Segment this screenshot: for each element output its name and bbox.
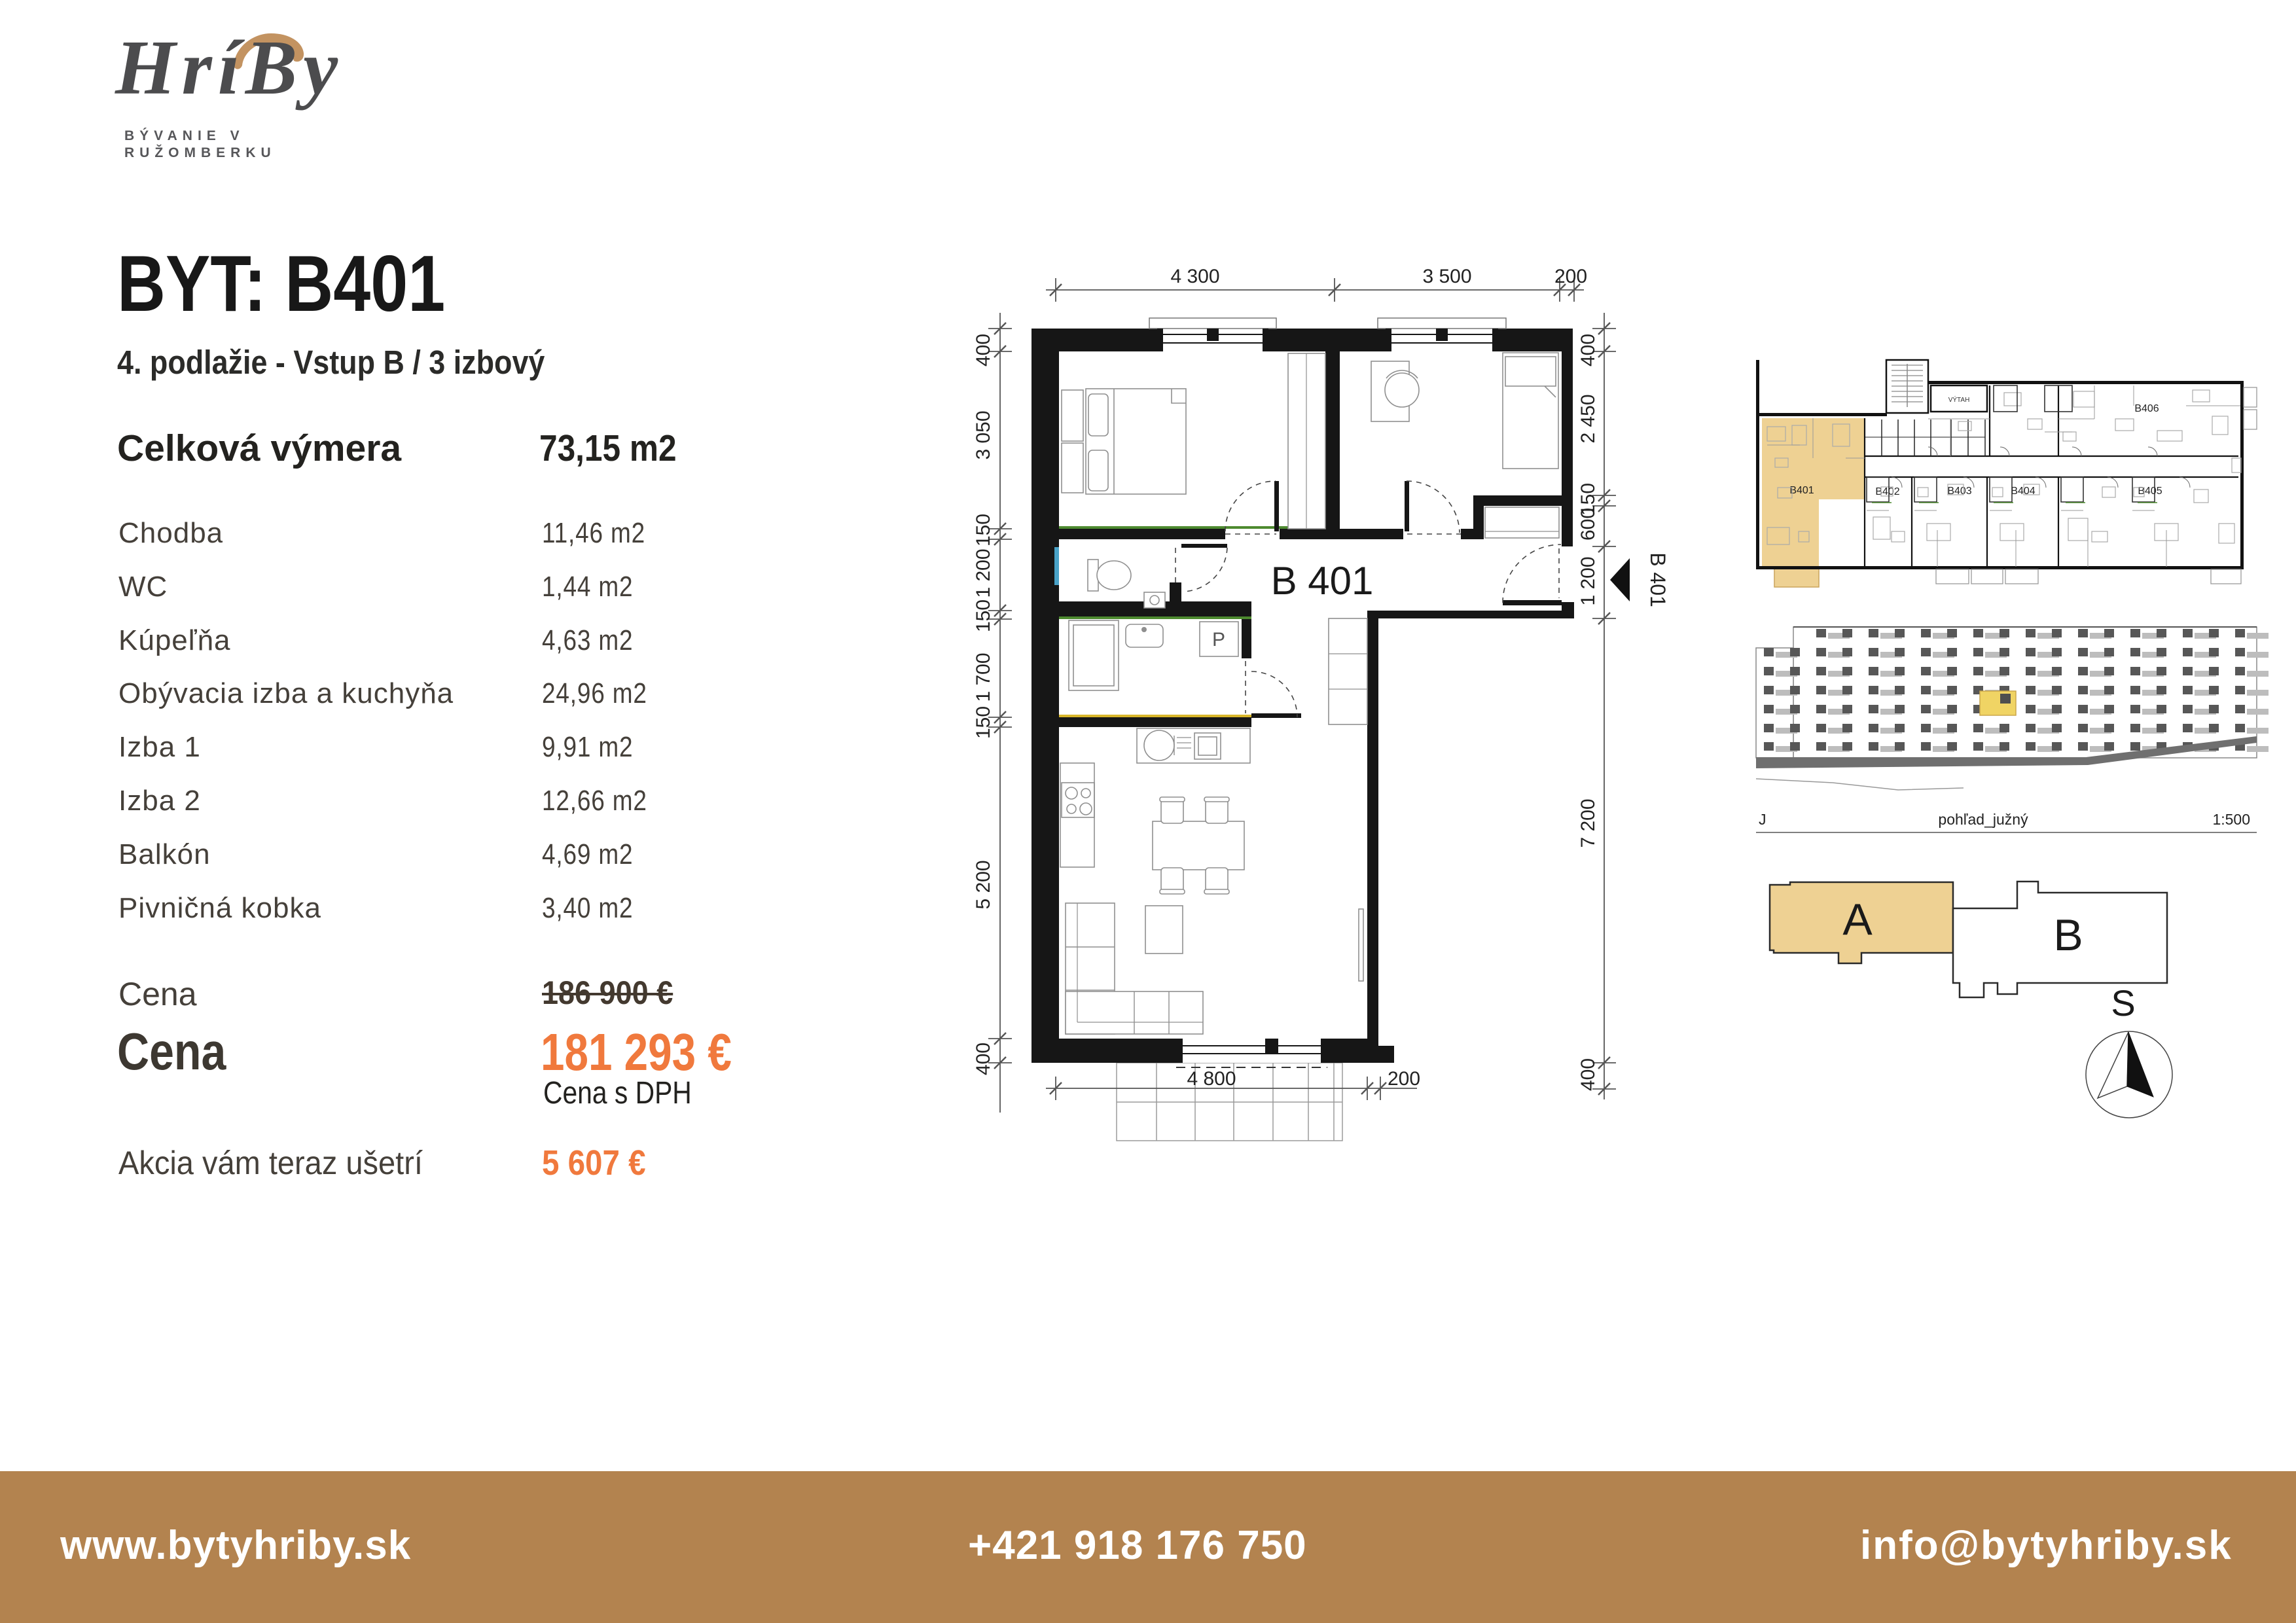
svg-text:1 200: 1 200: [973, 548, 994, 597]
svg-text:600: 600: [1577, 508, 1599, 541]
svg-text:VÝTAH: VÝTAH: [1948, 395, 1970, 404]
svg-text:B 401: B 401: [1646, 552, 1670, 607]
svg-text:400: 400: [973, 334, 994, 366]
svg-text:150: 150: [973, 599, 994, 632]
svg-text:1 200: 1 200: [1577, 556, 1599, 605]
svg-text:400: 400: [1577, 334, 1599, 366]
svg-text:5 200: 5 200: [973, 860, 994, 909]
svg-text:B401: B401: [1789, 485, 1814, 496]
svg-text:4 300: 4 300: [1170, 266, 1219, 287]
svg-text:1:500: 1:500: [2212, 811, 2250, 828]
svg-text:P: P: [1212, 629, 1225, 651]
svg-text:400: 400: [973, 1043, 994, 1075]
svg-text:pohľad_južný: pohľad_južný: [1938, 811, 2028, 828]
svg-text:3 050: 3 050: [973, 410, 994, 459]
svg-text:A: A: [1842, 895, 1873, 944]
svg-text:200: 200: [1554, 266, 1587, 287]
svg-text:B: B: [2053, 910, 2083, 960]
svg-text:S: S: [2111, 982, 2135, 1024]
svg-text:7 200: 7 200: [1577, 798, 1599, 847]
svg-text:150: 150: [973, 706, 994, 739]
svg-text:1 700: 1 700: [973, 652, 994, 702]
svg-text:200: 200: [1388, 1068, 1420, 1090]
svg-text:400: 400: [1577, 1058, 1599, 1091]
svg-text:J: J: [1759, 811, 1767, 828]
svg-text:4 800: 4 800: [1187, 1068, 1236, 1090]
svg-text:2 450: 2 450: [1577, 394, 1599, 443]
svg-text:3 500: 3 500: [1422, 266, 1471, 287]
svg-text:B 401: B 401: [1271, 559, 1374, 603]
svg-text:150: 150: [973, 514, 994, 546]
svg-text:B406: B406: [2134, 403, 2159, 414]
